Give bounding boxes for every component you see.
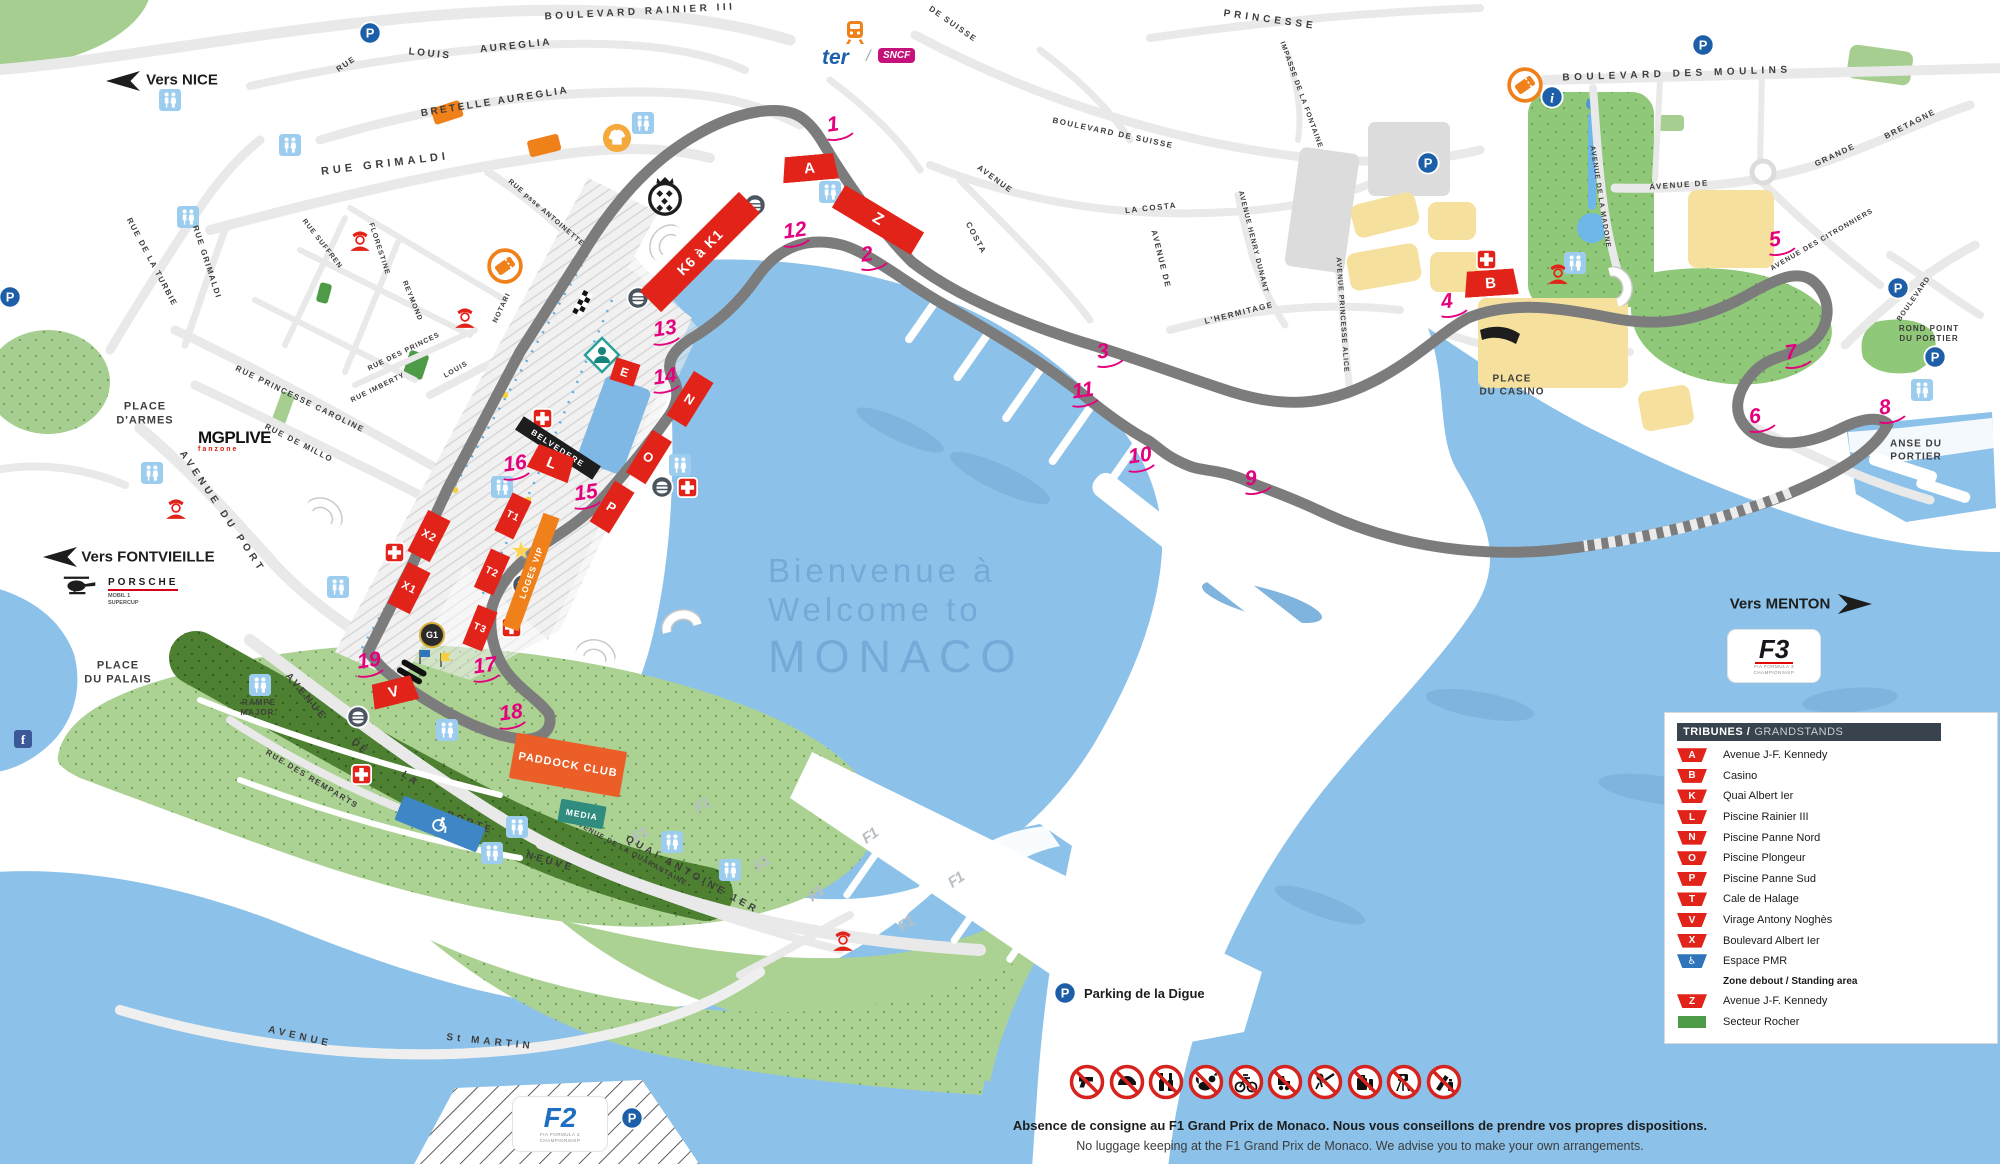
police-icon [455,308,475,328]
welcome-line-en: Welcome to [768,591,1025,630]
legend-grandstand-code: O [1677,851,1707,865]
monaco-circuit-map: P i [0,0,2000,1164]
wc-icon [249,674,271,696]
parking-icon [621,1107,642,1128]
place-palais: PLACEDU PALAIS [84,659,151,687]
wc-icon [632,112,654,134]
parking-icon [1417,152,1438,173]
parking-icon [1887,277,1908,298]
first-aid-icon [385,543,404,562]
wc-icon [1564,252,1586,274]
sncf-logo: SNCF [878,48,915,63]
legend-row: Z Avenue J-F. Kennedy [1677,991,1989,1012]
corner-10: 10 [1127,442,1153,469]
legend-grandstand-label: Quai Albert Ier [1723,790,1793,802]
corner-17: 17 [472,652,498,679]
no-helmets-icon [1107,1062,1147,1102]
legend-row: X Boulevard Albert Ier [1677,930,1989,951]
legend-grandstand-code: L [1677,810,1707,824]
no-bicycles-scooters-icon [1226,1062,1266,1102]
refreshment-icon [651,476,672,497]
legend-grandstand-label: Piscine Panne Sud [1723,873,1816,885]
wc-icon [506,816,528,838]
gate-g1-badge: G1 [419,622,445,648]
legend-grandstand-label: Espace PMR [1723,955,1787,967]
legend-grandstand-code: A [1677,748,1707,762]
legend-grandstand-code: P [1677,872,1707,886]
wheelchair-icon [428,812,451,835]
legend-grandstand-label: Piscine Plongeur [1723,852,1806,864]
legend-grandstand-label: Avenue J-F. Kennedy [1723,749,1827,761]
legend-grandstand-code: ♿ [1677,954,1707,968]
legend-title: TRIBUNES / GRANDSTANDS [1677,723,1941,741]
corner-19: 19 [356,647,382,674]
legend-standing-title: Zone debout / Standing area [1723,976,1857,987]
direction-menton: Vers MENTON [1730,596,1831,613]
first-aid-icon [1477,250,1496,269]
legend-row: L Piscine Rainier III [1677,807,1989,828]
legend-standing-code [1678,1016,1706,1028]
legend-grandstand-label: Piscine Panne Nord [1723,832,1820,844]
ticket-office-icon [489,250,521,282]
track-gate-icon [309,497,343,527]
place-armes: PLACED'ARMES [116,400,173,428]
corner-16: 16 [502,450,528,477]
roundabout [1752,161,1774,183]
legend-grandstand-label: Piscine Rainier III [1723,811,1809,823]
no-weapons-icon [1067,1062,1107,1102]
legend-standing-code: Z [1677,994,1707,1008]
no-glass-bottles-icon [1146,1062,1186,1102]
info-icon [1541,86,1562,107]
corner-13: 13 [652,315,678,342]
legend-row: V Virage Antony Noghès [1677,910,1989,931]
welcome-line-fr: Bienvenue à [768,552,1025,591]
parking-icon [0,286,21,307]
welcome-text: Bienvenue à Welcome to MONACO [768,552,1025,683]
corner-18: 18 [498,699,524,726]
star-icon: ★ [510,537,532,566]
ter-logo: ter [822,46,849,70]
grandstand-a: A [781,153,839,184]
direction-fontvieille: Vers FONTVIEILLE [81,549,214,566]
porsche-supercup-logo: PORSCHE MOBIL 1SUPERCUP [108,577,178,607]
no-selfie-sticks-icon [1305,1062,1345,1102]
wc-icon [279,134,301,156]
wc-icon [481,842,503,864]
legend-standing-label: Secteur Rocher [1723,1016,1799,1028]
police-icon [350,231,370,251]
no-camera-tripods-icon [1384,1062,1424,1102]
wc-icon [661,831,683,853]
refreshment-icon [347,706,368,727]
parking-icon [1692,34,1713,55]
legend-grandstand-code: N [1677,831,1707,845]
corner-15: 15 [573,479,599,506]
direction-nice: Vers NICE [146,72,218,89]
parking-digue-label: Parking de la Digue [1084,986,1205,1001]
legend-grandstand-code: T [1677,892,1707,906]
no-animals-icon [1186,1062,1226,1102]
no-knives-aerosols-icon [1424,1062,1464,1102]
wc-icon [436,719,458,741]
no-rollerblades-icon [1265,1062,1305,1102]
f2-logo-card: F2 FIA FORMULA 2CHAMPIONSHIP [512,1096,608,1152]
svg-text:f: f [21,732,26,747]
ter-sncf-divider: / [866,48,870,66]
track-gate-icon [579,641,614,663]
legend-grandstand-code: X [1677,934,1707,948]
train-station-icon [846,21,864,44]
legend-grandstand-label: Virage Antony Noghès [1723,914,1832,926]
f2-logo: F2 [544,1104,577,1132]
legend-grandstand-code: B [1677,769,1707,783]
rampe-major: RAMPEMAJOR. [240,698,277,718]
f3-logo: F3 [1755,636,1793,664]
facebook-icon: f [14,730,32,748]
note-fr: Absence de consigne au F1 Grand Prix de … [860,1118,1860,1133]
legend-row: N Piscine Panne Nord [1677,827,1989,848]
grandstand-b: B [1463,268,1519,298]
legend-grandstand-code: V [1677,913,1707,927]
legend-standing-label: Avenue J-F. Kennedy [1723,995,1827,1007]
legend-grandstand-list: A Avenue J-F. Kennedy B Casino K Quai Al… [1677,745,1989,972]
legend-row: ♿ Espace PMR [1677,951,1989,972]
welcome-city: MONACO [768,630,1025,683]
anse-du-portier: ANSE DUPORTIER [1890,439,1942,464]
parking-icon [359,22,380,43]
helicopter-icon [64,578,96,593]
corner-11: 11 [1071,378,1096,405]
legend-row: T Cale de Halage [1677,889,1989,910]
wc-icon [719,859,741,881]
wc-icon [141,462,163,484]
legend-grandstand-label: Cale de Halage [1723,893,1799,905]
legend-grandstand-label: Casino [1723,770,1757,782]
legend-grandstand-label: Boulevard Albert Ier [1723,935,1820,947]
track-gate-icon [649,224,679,258]
f3-logo-card: F3 FIA FORMULA 3CHAMPIONSHIP [1727,629,1821,683]
legend-row: B Casino [1677,766,1989,787]
legend-row: A Avenue J-F. Kennedy [1677,745,1989,766]
first-aid-icon [678,478,697,497]
place-casino: PLACEDU CASINO [1479,374,1544,399]
first-aid-icon [352,765,371,784]
no-luggage-icon [1345,1062,1385,1102]
wc-icon [1911,379,1933,401]
wc-icon [669,454,691,476]
note-en: No luggage keeping at the F1 Grand Prix … [860,1139,1860,1153]
legend-standing-list: Z Avenue J-F. Kennedy Secteur Rocher [1677,991,1989,1032]
legend-grandstand-code: K [1677,789,1707,803]
wc-icon [327,576,349,598]
legend-panel: TRIBUNES / GRANDSTANDS A Avenue J-F. Ken… [1664,712,1998,1044]
legend-title-en: GRANDSTANDS [1754,726,1843,738]
legend-row: K Quai Albert Ier [1677,786,1989,807]
parking-icon [1054,982,1075,1003]
parking-icon [1924,346,1945,367]
legend-row: O Piscine Plongeur [1677,848,1989,869]
corner-14: 14 [652,363,678,390]
legend-row: Secteur Rocher [1677,1012,1989,1033]
legend-row: P Piscine Panne Sud [1677,869,1989,890]
legend-title-fr: TRIBUNES / [1683,726,1750,738]
wc-icon [159,89,181,111]
merchandise-icon [603,124,631,152]
corner-12: 12 [782,217,808,244]
acm-crest-icon [650,177,681,214]
police-icon [166,499,186,518]
mgp-live-logo: MGPLIVEfanzone [198,428,271,453]
rond-point-portier: ROND POINTDU PORTIER [1899,324,1959,344]
ticket-office-icon [1509,69,1541,101]
